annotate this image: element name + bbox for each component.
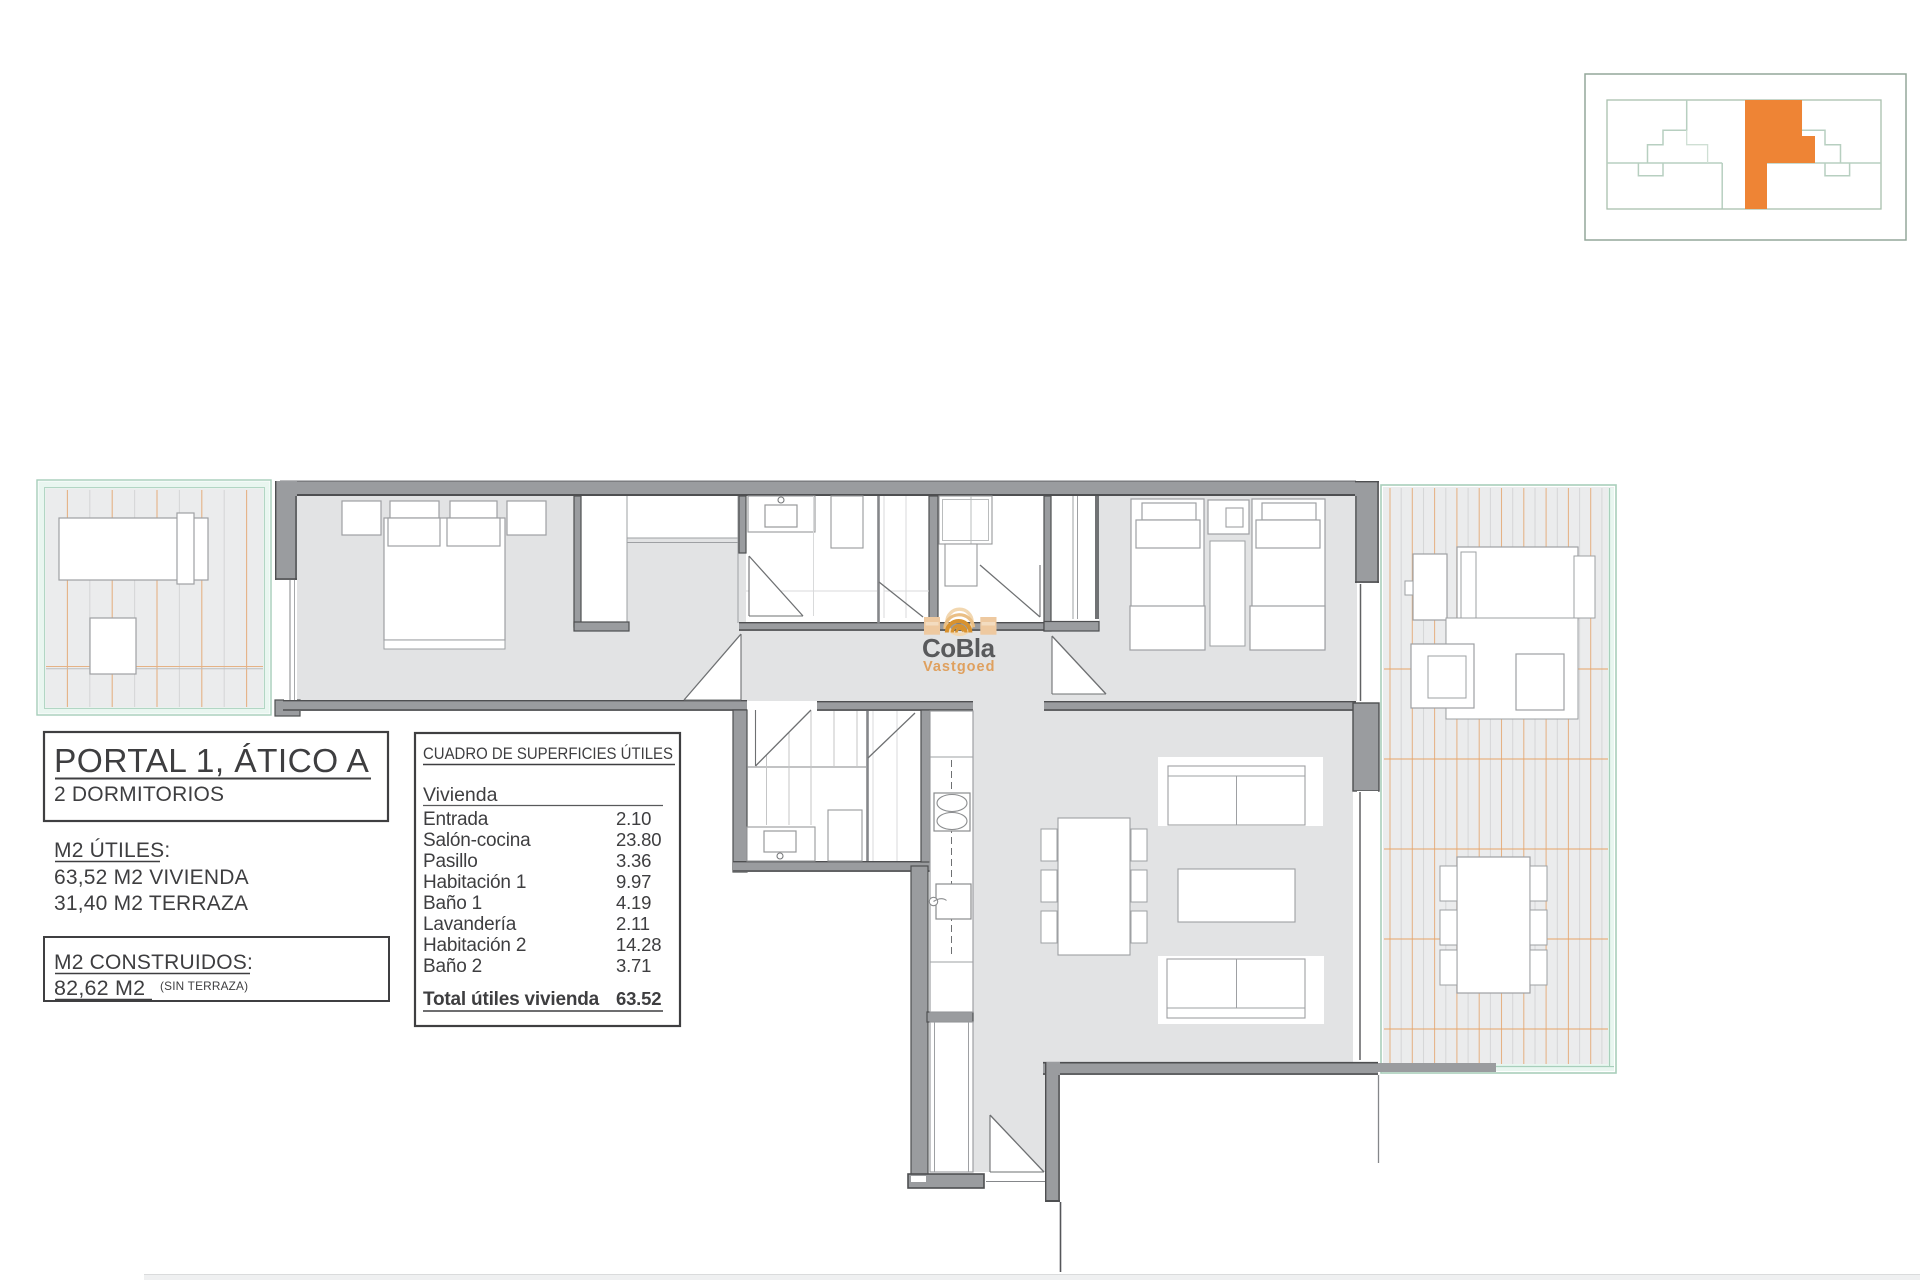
svg-text:2.11: 2.11 [616,913,650,934]
svg-text:Habitación 1: Habitación 1 [423,872,526,893]
svg-text:3.36: 3.36 [616,850,651,871]
svg-text:CUADRO DE SUPERFICIES ÚTILES: CUADRO DE SUPERFICIES ÚTILES [423,744,673,763]
svg-text:Total útiles vivienda: Total útiles vivienda [423,989,600,1010]
svg-text:(SIN TERRAZA): (SIN TERRAZA) [160,979,248,993]
svg-text:M2 CONSTRUIDOS:: M2 CONSTRUIDOS: [54,951,253,974]
svg-text:Baño 1: Baño 1 [423,893,482,914]
svg-text:Salón-cocina: Salón-cocina [423,830,531,851]
svg-text:Lavandería: Lavandería [423,914,517,935]
svg-text:2 DORMITORIOS: 2 DORMITORIOS [54,783,224,806]
svg-text:82,62 M2: 82,62 M2 [54,976,145,1000]
svg-text:31,40 M2 TERRAZA: 31,40 M2 TERRAZA [54,892,248,915]
svg-text:PORTAL 1, ÁTICO A: PORTAL 1, ÁTICO A [54,743,369,780]
svg-text:Habitación 2: Habitación 2 [423,935,526,956]
svg-text:Entrada: Entrada [423,809,489,830]
svg-text:Baño 2: Baño 2 [423,956,482,977]
svg-text:4.19: 4.19 [616,892,651,913]
svg-text:9.97: 9.97 [616,871,651,892]
svg-text:M2 ÚTILES:: M2 ÚTILES: [54,839,170,862]
svg-text:Vivienda: Vivienda [423,784,498,806]
svg-text:14.28: 14.28 [616,934,661,955]
svg-text:2.10: 2.10 [616,808,651,829]
svg-text:Vastgoed: Vastgoed [923,659,995,675]
svg-text:63.52: 63.52 [616,988,661,1009]
svg-text:3.71: 3.71 [616,955,651,976]
svg-text:Pasillo: Pasillo [423,851,478,872]
svg-text:63,52 M2 VIVIENDA: 63,52 M2 VIVIENDA [54,866,249,889]
svg-text:23.80: 23.80 [616,829,661,850]
